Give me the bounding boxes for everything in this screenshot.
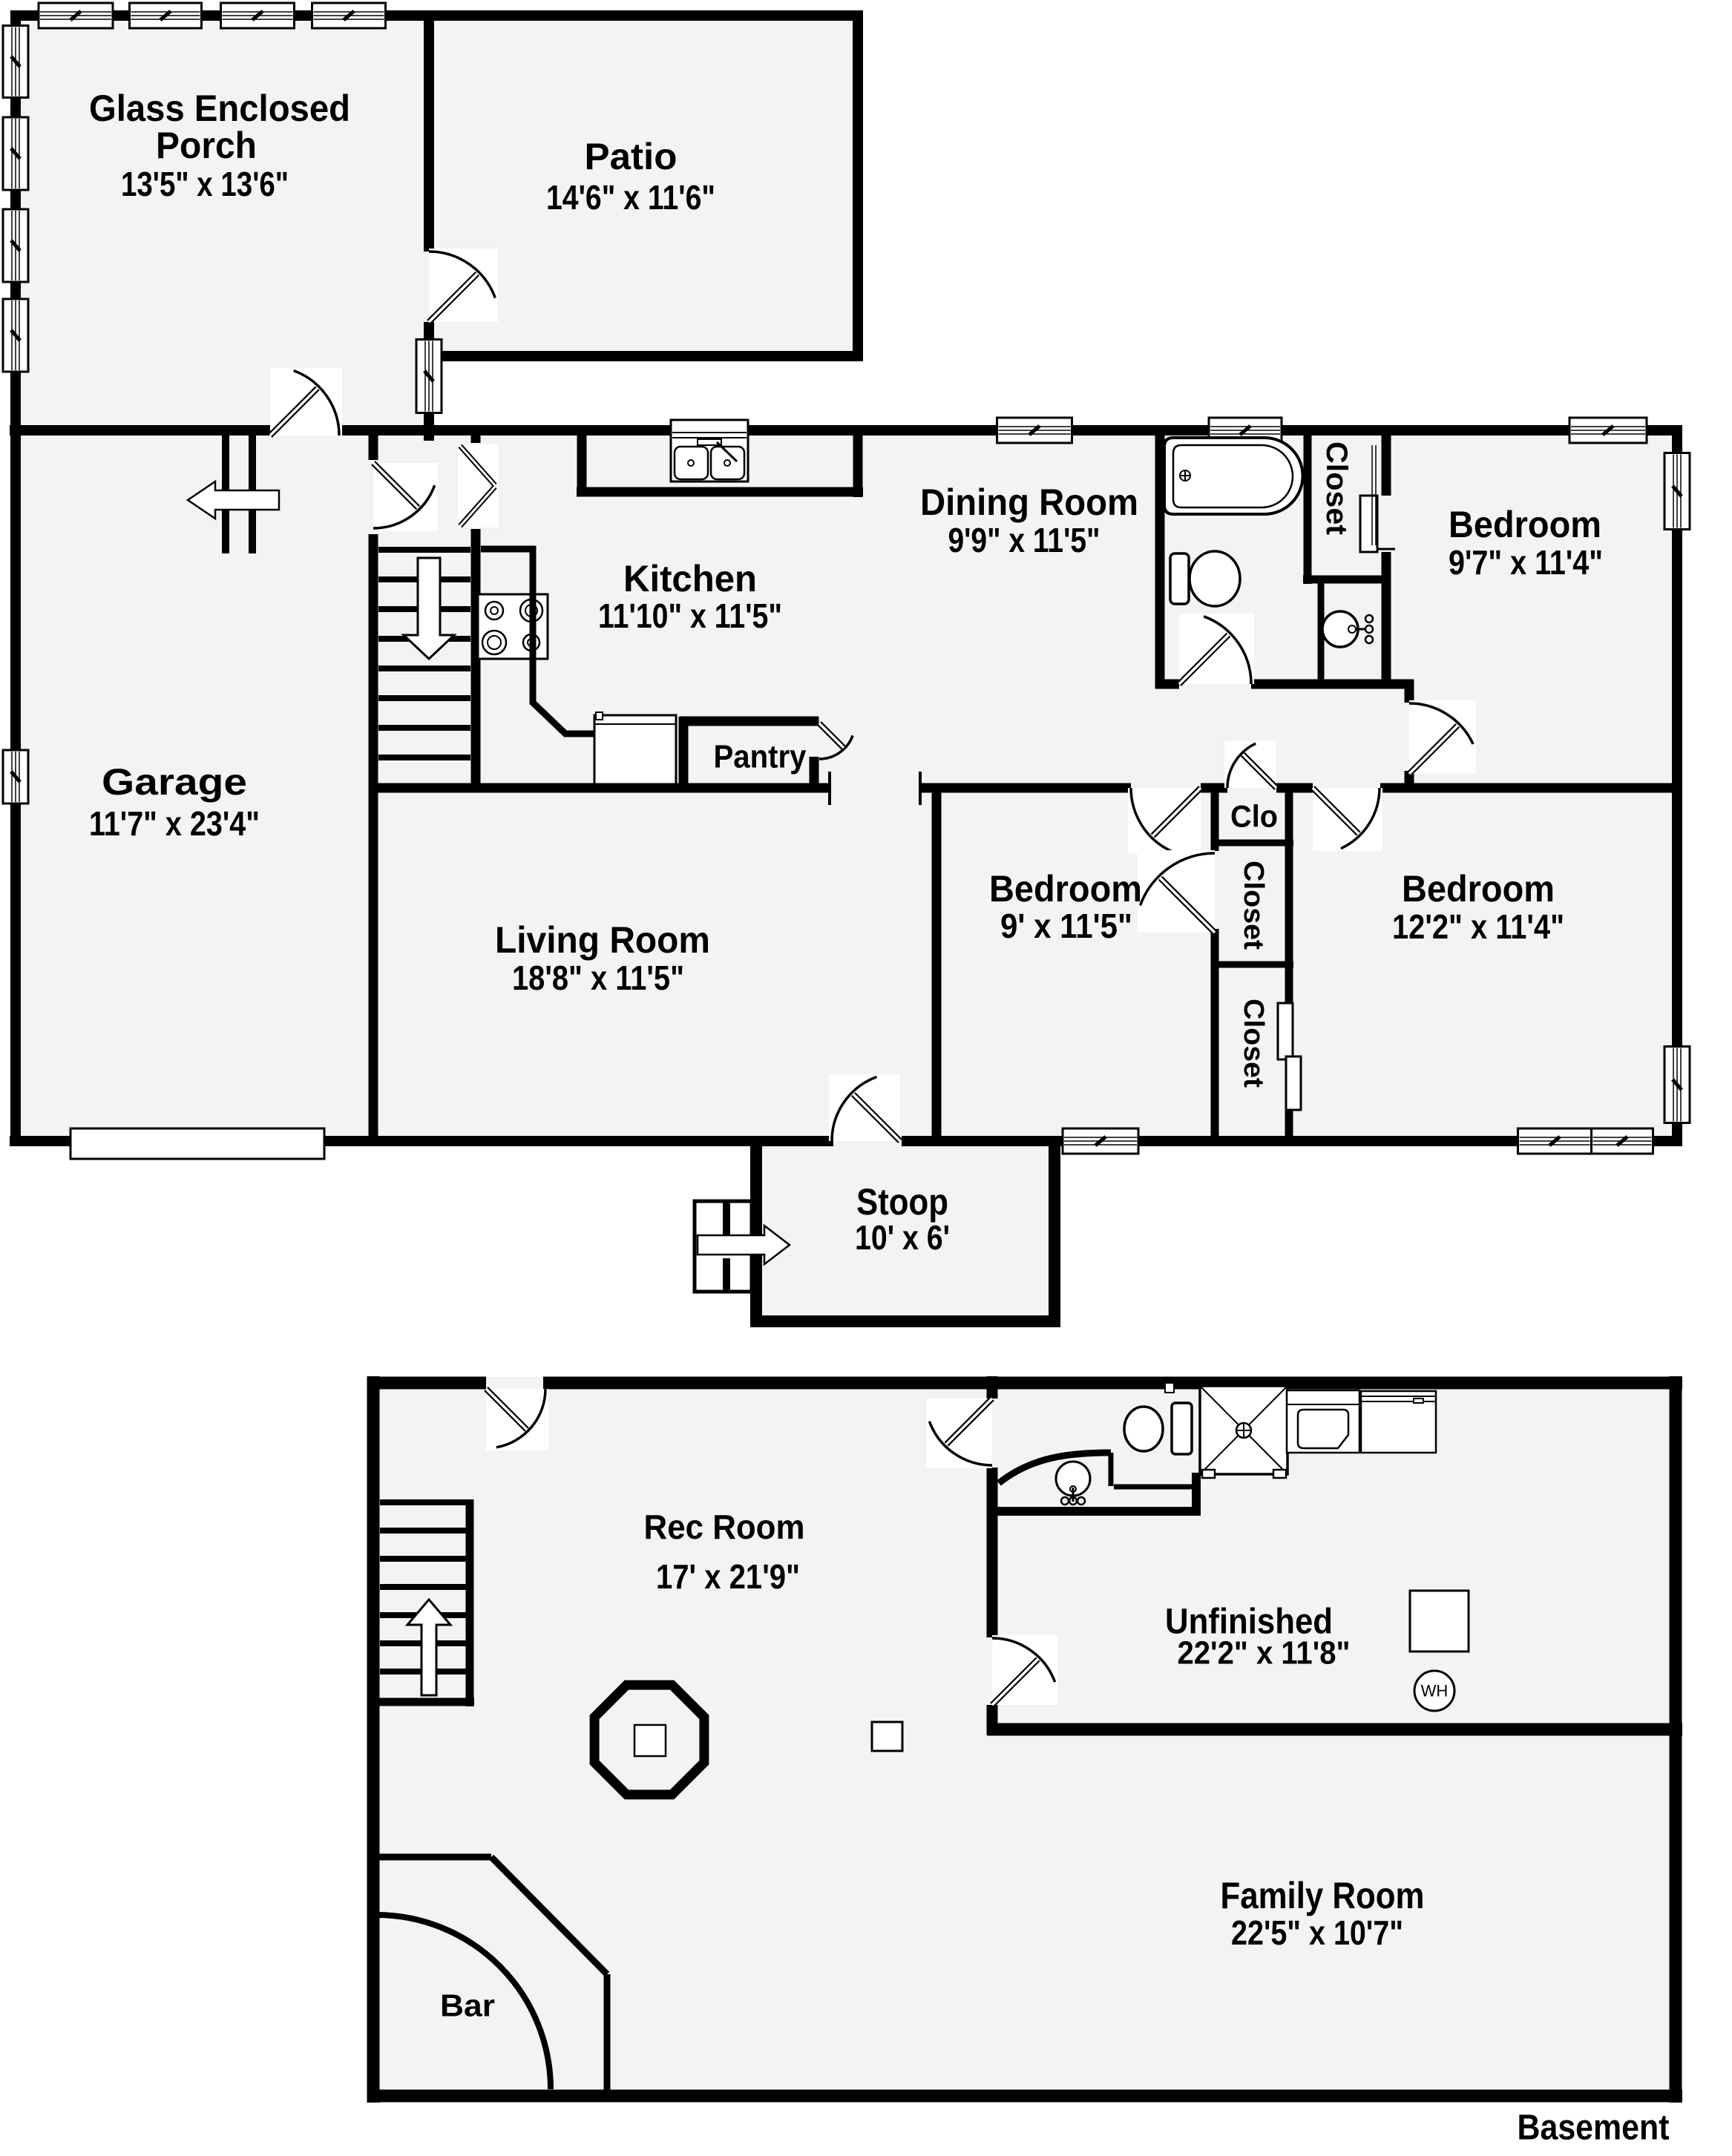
svg-text:Living Room: Living Room (495, 919, 710, 961)
svg-text:11'7" x 23'4": 11'7" x 23'4" (89, 804, 260, 843)
svg-text:Bedroom: Bedroom (1449, 504, 1601, 545)
svg-text:Bedroom: Bedroom (989, 868, 1142, 910)
svg-text:Dining Room: Dining Room (920, 482, 1138, 523)
svg-text:Closet: Closet (1238, 999, 1269, 1088)
svg-text:Porch: Porch (156, 125, 257, 166)
svg-text:17' x 21'9": 17' x 21'9" (656, 1557, 800, 1596)
svg-text:18'8" x 11'5": 18'8" x 11'5" (512, 959, 684, 997)
svg-text:Bar: Bar (440, 1988, 495, 2023)
svg-text:9'7" x 11'4": 9'7" x 11'4" (1449, 543, 1603, 582)
svg-text:Pantry: Pantry (714, 739, 807, 775)
svg-text:Closet: Closet (1320, 441, 1353, 535)
svg-text:Kitchen: Kitchen (623, 558, 757, 599)
svg-text:10' x 6': 10' x 6' (855, 1218, 950, 1257)
svg-text:9'9" x 11'5": 9'9" x 11'5" (948, 521, 1100, 559)
svg-text:Clo: Clo (1230, 799, 1278, 834)
svg-text:Rec Room: Rec Room (644, 1508, 805, 1546)
svg-text:WH: WH (1421, 1682, 1449, 1700)
svg-text:Family Room: Family Room (1221, 1875, 1425, 1916)
svg-text:Patio: Patio (585, 136, 678, 177)
svg-text:Garage: Garage (102, 761, 247, 803)
svg-text:22'5" x 10'7": 22'5" x 10'7" (1231, 1913, 1403, 1952)
svg-text:Bedroom: Bedroom (1402, 868, 1555, 910)
svg-text:11'10" x 11'5": 11'10" x 11'5" (598, 596, 782, 635)
svg-text:14'6" x 11'6": 14'6" x 11'6" (546, 178, 715, 217)
svg-text:22'2" x 11'8": 22'2" x 11'8" (1178, 1635, 1351, 1672)
svg-text:Stoop: Stoop (856, 1181, 948, 1223)
svg-text:Basement: Basement (1518, 2109, 1670, 2148)
svg-text:12'2" x 11'4": 12'2" x 11'4" (1392, 907, 1564, 946)
svg-text:9' x 11'5": 9' x 11'5" (1000, 907, 1132, 945)
svg-text:Glass Enclosed: Glass Enclosed (89, 88, 350, 129)
svg-text:Closet: Closet (1238, 861, 1269, 950)
svg-text:13'5" x 13'6": 13'5" x 13'6" (121, 165, 289, 203)
